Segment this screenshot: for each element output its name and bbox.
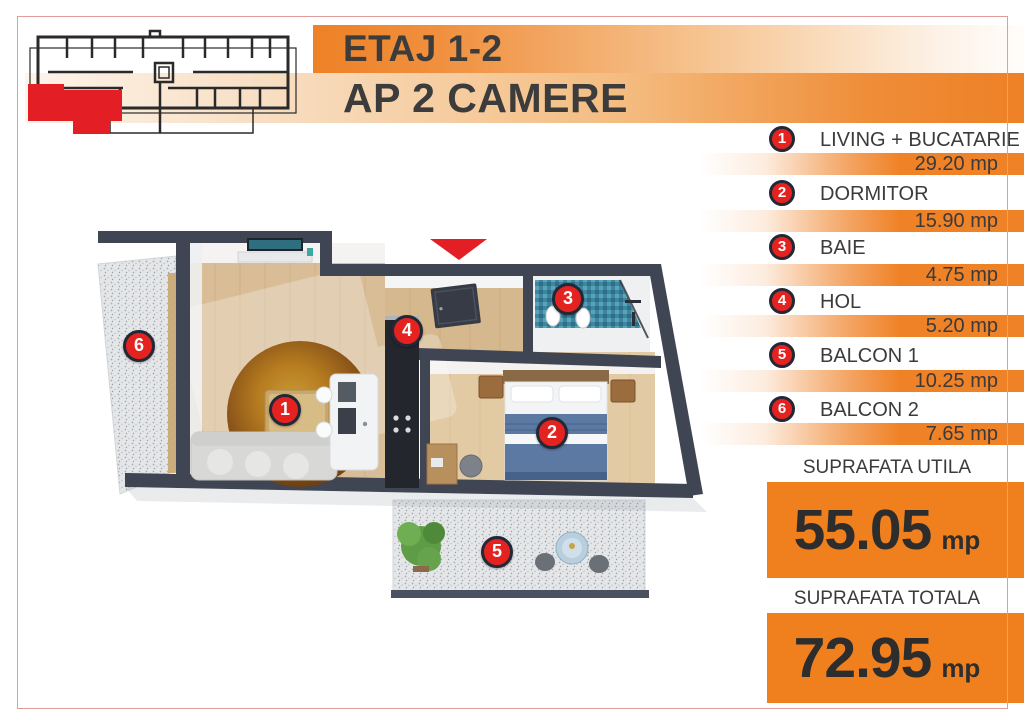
tv-unit: [238, 238, 313, 262]
legend-badge-6: 6: [769, 396, 795, 422]
legend-area-bar-5: 10.25 mp: [700, 370, 1024, 392]
legend-badge-5: 5: [769, 342, 795, 368]
legend-area-bar-4: 5.20 mp: [700, 315, 1024, 337]
legend-area-value-1: 29.20 mp: [915, 153, 998, 175]
legend-area-value-5: 10.25 mp: [915, 370, 998, 392]
balcony-2-floor: [98, 256, 176, 494]
plan-marker-2: 2: [536, 417, 568, 449]
legend-badge-3: 3: [769, 234, 795, 260]
legend-badge-2: 2: [769, 180, 795, 206]
floorplan-render: [75, 218, 715, 618]
legend-row: 4 HOL: [700, 288, 1024, 316]
legend-row: 5 BALCON 1: [700, 342, 1024, 370]
legend-row: 6 BALCON 2: [700, 396, 1024, 424]
total-area-unit: mp: [941, 653, 980, 684]
total-area-value: 72.95: [794, 625, 932, 691]
legend-room-name-5: BALCON 1: [820, 343, 919, 369]
plan-marker-3: 3: [552, 283, 584, 315]
legend-row: 2 DORMITOR: [700, 180, 1024, 208]
legend-badge-4: 4: [769, 288, 795, 314]
plan-marker-5: 5: [481, 536, 513, 568]
flyer-canvas: ETAJ 1-2 AP 2 CAMERE 1 LIVING + BUCATARI…: [0, 0, 1024, 725]
legend-area-value-2: 15.90 mp: [915, 210, 998, 232]
sofa: [191, 432, 337, 480]
legend-room-name-1: LIVING + BUCATARIE: [820, 127, 1020, 153]
plan-marker-4: 4: [391, 315, 423, 347]
legend-area-bar-2: 15.90 mp: [700, 210, 1024, 232]
total-area-label: SUPRAFATA TOTALA: [767, 588, 1007, 610]
useful-area-value: 55.05: [794, 497, 932, 563]
legend-room-name-6: BALCON 2: [820, 397, 919, 423]
legend-area-bar-3: 4.75 mp: [700, 264, 1024, 286]
useful-area-box: 55.05 mp: [767, 482, 1024, 578]
legend-row: 3 BAIE: [700, 234, 1024, 262]
legend-area-value-6: 7.65 mp: [926, 423, 998, 445]
useful-area-label: SUPRAFATA UTILA: [767, 457, 1007, 479]
legend-area-value-4: 5.20 mp: [926, 315, 998, 337]
entrance-door: [430, 283, 481, 328]
legend-area-value-3: 4.75 mp: [926, 264, 998, 286]
legend-room-name-2: DORMITOR: [820, 181, 929, 207]
plan-marker-6: 6: [123, 330, 155, 362]
legend-badge-1: 1: [769, 126, 795, 152]
bathroom-floor: [533, 276, 650, 352]
total-area-box: 72.95 mp: [767, 613, 1024, 703]
legend-area-bar-1: 29.20 mp: [700, 153, 1024, 175]
plan-marker-1: 1: [269, 394, 301, 426]
highlighted-apartment: [28, 84, 122, 134]
legend-room-name-4: HOL: [820, 289, 861, 315]
entrance-arrow: [430, 239, 487, 260]
useful-area-unit: mp: [941, 525, 980, 556]
legend-row: 1 LIVING + BUCATARIE: [700, 126, 1024, 154]
building-locator-sketch: [18, 28, 308, 140]
legend-room-name-3: BAIE: [820, 235, 866, 261]
legend-area-bar-6: 7.65 mp: [700, 423, 1024, 445]
